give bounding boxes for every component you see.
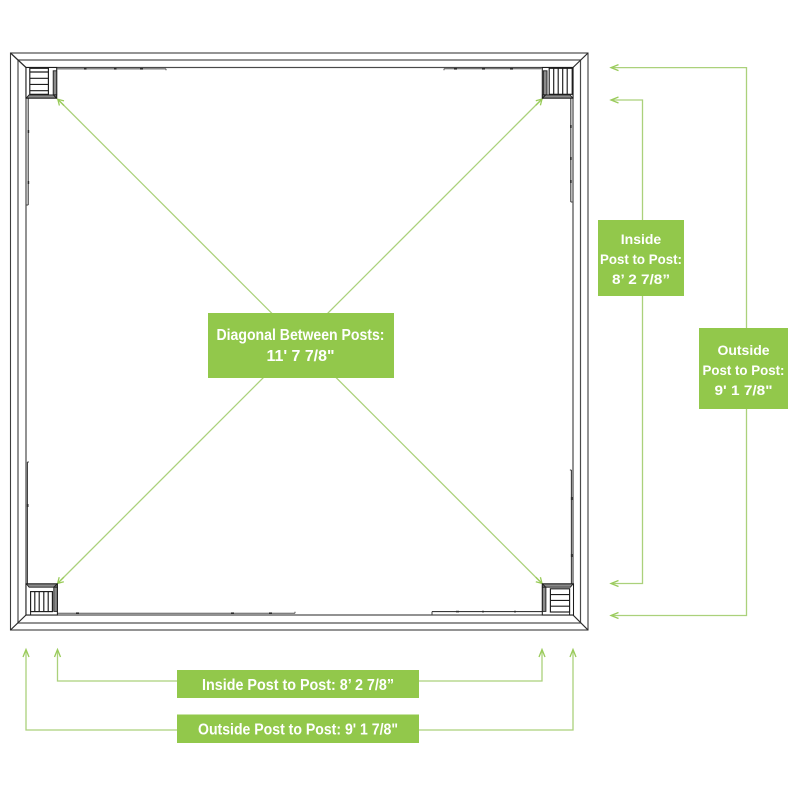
- svg-text:11' 7 7/8": 11' 7 7/8": [267, 348, 335, 365]
- svg-text:Diagonal Between Posts:: Diagonal Between Posts:: [217, 327, 385, 344]
- svg-text:9' 1 7/8": 9' 1 7/8": [715, 382, 773, 398]
- svg-text:Post to Post:: Post to Post:: [600, 251, 682, 267]
- svg-text:Outside Post to Post: 9' 1 7/8: Outside Post to Post: 9' 1 7/8": [198, 722, 398, 739]
- svg-text:Inside: Inside: [621, 231, 662, 247]
- svg-text:8’ 2 7/8”: 8’ 2 7/8”: [612, 271, 670, 287]
- svg-text:Inside Post to Post: 8’ 2 7/8”: Inside Post to Post: 8’ 2 7/8”: [202, 677, 394, 694]
- svg-text:Outside: Outside: [717, 342, 769, 358]
- svg-text:Post to Post:: Post to Post:: [703, 362, 785, 378]
